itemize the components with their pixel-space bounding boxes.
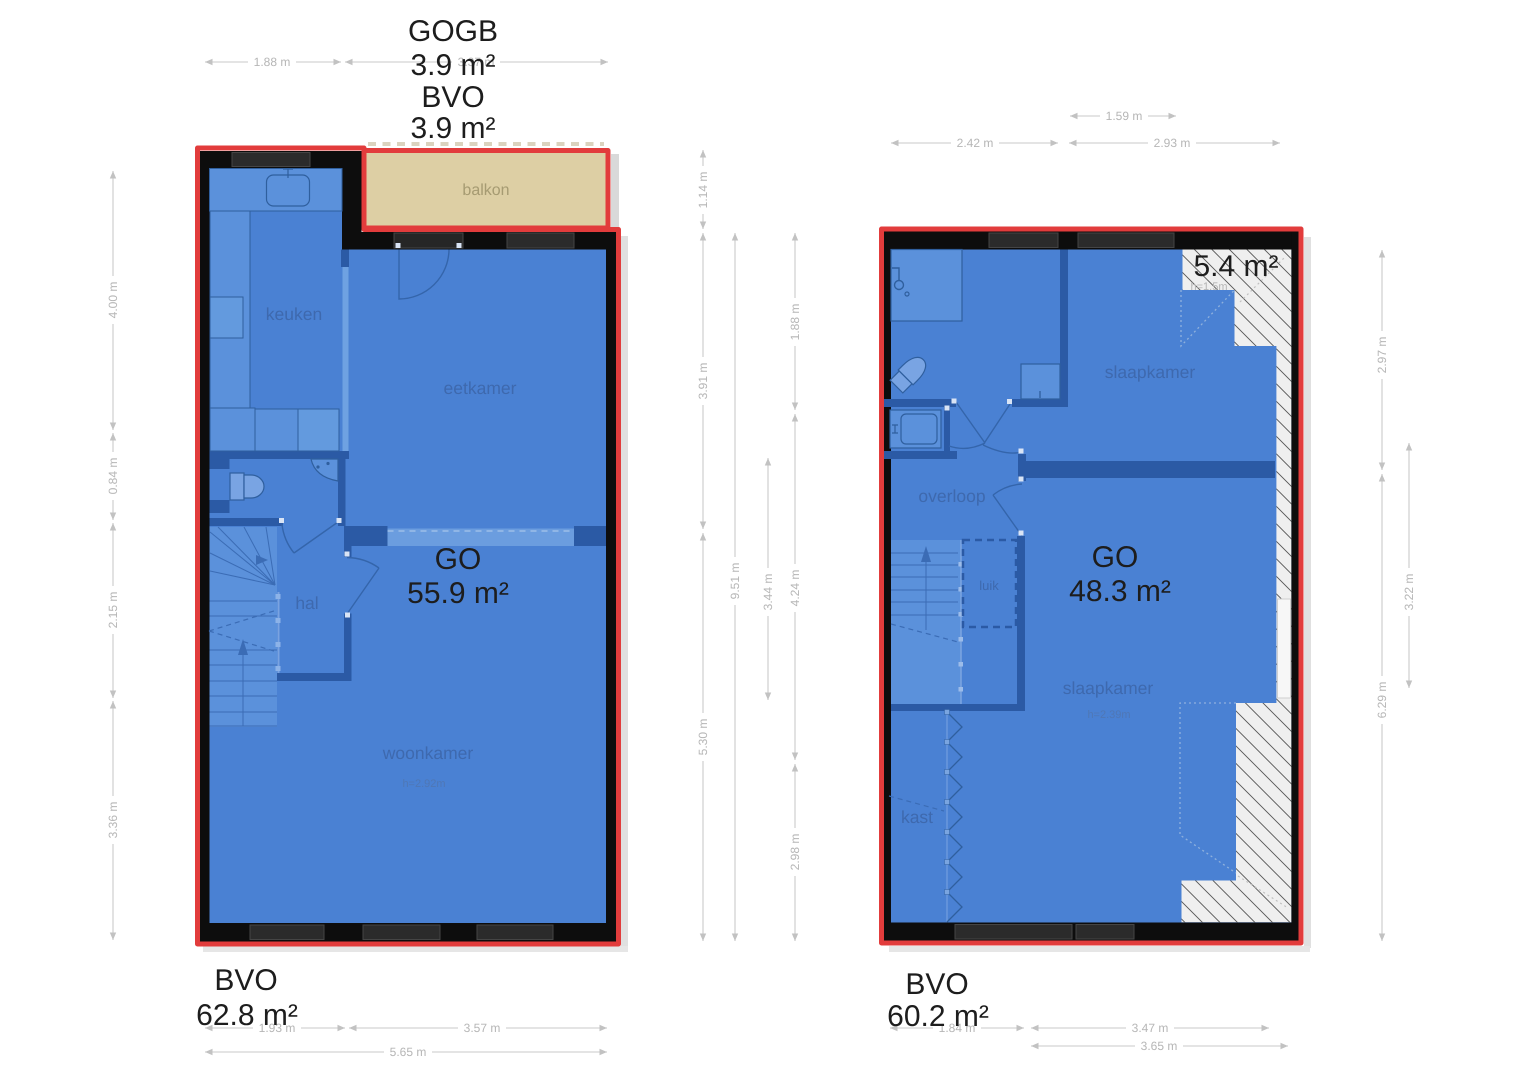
svg-text:BVO: BVO <box>905 968 968 1001</box>
svg-text:GO: GO <box>435 543 482 576</box>
svg-text:keuken: keuken <box>266 304 322 324</box>
svg-text:1.14 m: 1.14 m <box>696 172 710 209</box>
svg-text:4.24 m: 4.24 m <box>788 570 802 607</box>
svg-text:3.65 m: 3.65 m <box>1141 1039 1178 1053</box>
svg-text:3.22 m: 3.22 m <box>1402 574 1416 611</box>
svg-text:hal: hal <box>295 593 318 613</box>
svg-text:2.15 m: 2.15 m <box>106 592 120 629</box>
svg-text:h=2.92m: h=2.92m <box>402 778 445 790</box>
svg-text:6.29 m: 6.29 m <box>1375 682 1389 719</box>
svg-text:overloop: overloop <box>918 486 985 506</box>
svg-text:2.42 m: 2.42 m <box>957 136 994 150</box>
svg-text:2.98 m: 2.98 m <box>788 834 802 871</box>
svg-text:eetkamer: eetkamer <box>444 378 517 398</box>
svg-text:BVO: BVO <box>214 964 277 997</box>
svg-text:balkon: balkon <box>462 182 509 199</box>
svg-text:0.84 m: 0.84 m <box>106 458 120 495</box>
svg-text:3.44 m: 3.44 m <box>761 574 775 611</box>
svg-text:62.8 m²: 62.8 m² <box>196 999 298 1032</box>
svg-text:1.88 m: 1.88 m <box>254 55 291 69</box>
svg-text:55.9 m²: 55.9 m² <box>407 577 509 610</box>
svg-text:9.51 m: 9.51 m <box>728 563 742 600</box>
svg-text:3.36 m: 3.36 m <box>106 802 120 839</box>
svg-text:slaapkamer: slaapkamer <box>1105 362 1196 382</box>
svg-text:3.47 m: 3.47 m <box>1132 1021 1169 1035</box>
svg-text:3.9 m²: 3.9 m² <box>410 49 495 82</box>
svg-text:4.00 m: 4.00 m <box>106 282 120 319</box>
svg-text:woonkamer: woonkamer <box>382 743 474 763</box>
svg-text:GOGB: GOGB <box>408 15 498 48</box>
svg-text:1.88 m: 1.88 m <box>788 304 802 341</box>
svg-text:kast: kast <box>901 807 933 827</box>
svg-text:48.3 m²: 48.3 m² <box>1069 575 1171 608</box>
svg-text:h=1.5m: h=1.5m <box>1191 281 1228 293</box>
svg-text:5.65 m: 5.65 m <box>390 1045 427 1059</box>
svg-text:BVO: BVO <box>421 81 484 114</box>
svg-text:3.9 m²: 3.9 m² <box>410 112 495 145</box>
svg-text:2.97 m: 2.97 m <box>1375 337 1389 374</box>
svg-text:5.4 m²: 5.4 m² <box>1193 250 1278 283</box>
svg-text:luik: luik <box>979 578 999 593</box>
svg-text:slaapkamer: slaapkamer <box>1063 678 1154 698</box>
svg-text:3.91 m: 3.91 m <box>696 363 710 400</box>
svg-text:1.59 m: 1.59 m <box>1106 109 1143 123</box>
svg-text:GO: GO <box>1092 541 1139 574</box>
svg-text:h=2.39m: h=2.39m <box>1087 709 1130 721</box>
svg-text:60.2 m²: 60.2 m² <box>887 1000 989 1033</box>
svg-text:3.57 m: 3.57 m <box>464 1021 501 1035</box>
svg-text:2.93 m: 2.93 m <box>1154 136 1191 150</box>
svg-text:5.30 m: 5.30 m <box>696 719 710 756</box>
